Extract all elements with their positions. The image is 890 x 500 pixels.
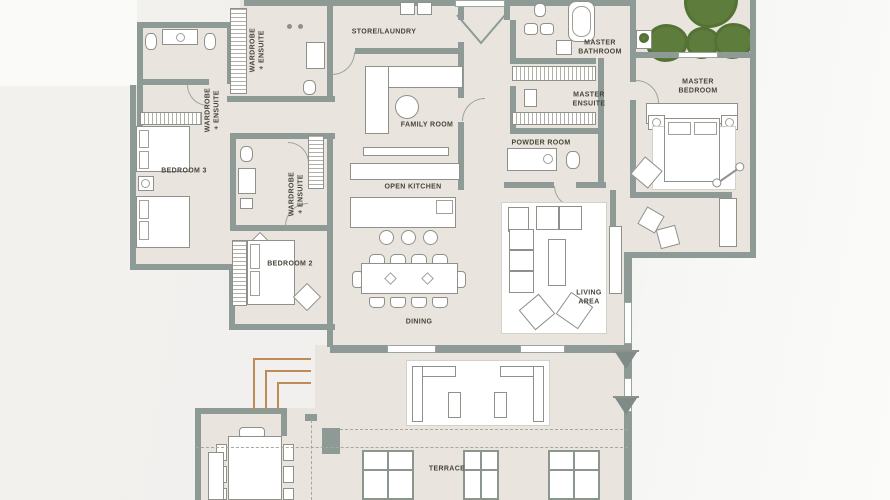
wall	[281, 408, 287, 436]
wall	[630, 0, 636, 58]
tv-console-icon	[363, 147, 449, 156]
wall	[230, 225, 330, 231]
wall	[504, 182, 554, 188]
plant-symbol-icon	[615, 352, 637, 369]
wall	[229, 324, 335, 330]
bar-stool-icon	[379, 230, 394, 245]
window-mullion	[550, 469, 598, 471]
window	[548, 450, 600, 500]
bar-stool-icon	[423, 230, 438, 245]
room-label-dining: DINING	[406, 319, 433, 328]
outdoor-chair-icon	[283, 466, 294, 483]
outdoor-chair-icon	[283, 488, 294, 500]
sink-icon	[540, 23, 554, 35]
wall	[750, 0, 756, 258]
media-unit-icon	[609, 226, 622, 294]
spotlight-icon	[287, 24, 292, 29]
wall	[195, 408, 201, 500]
dining-chair-icon	[369, 297, 385, 308]
room-label-master-bathroom: MASTER BATHROOM	[578, 39, 622, 57]
terrace-door-window	[520, 345, 565, 353]
wall	[327, 0, 333, 100]
room-label-master-bedroom: MASTER BEDROOM	[678, 78, 717, 96]
dashed-boundary-line	[196, 447, 628, 448]
terrace-sofa-icon	[533, 366, 544, 422]
room-label-living-area: LIVING AREA	[576, 289, 601, 307]
sink-basin-icon	[176, 33, 185, 42]
pillow-icon	[668, 122, 691, 135]
bathtub-basin-icon	[572, 6, 591, 37]
toilet-icon	[204, 33, 216, 50]
wall	[322, 428, 340, 454]
shower-icon	[556, 40, 572, 55]
wall	[630, 100, 636, 194]
room-label-terrace: TERRACE	[429, 466, 465, 475]
dining-chair-icon	[432, 297, 448, 308]
toilet-icon	[534, 3, 546, 17]
wall	[510, 128, 602, 134]
pillow-icon	[694, 122, 717, 135]
dining-table-icon	[361, 263, 458, 294]
room-label-powder-room: POWDER ROOM	[511, 140, 570, 149]
kitchen-counter-icon	[350, 163, 460, 180]
sink-icon	[240, 198, 253, 209]
washer-icon	[417, 2, 432, 15]
outdoor-table-icon	[228, 436, 282, 500]
wall	[244, 0, 330, 6]
background-patch	[0, 0, 137, 86]
floor-plan: WARDROBE + ENSUITE WARDROBE + ENSUITE WA…	[0, 0, 890, 500]
pillow-icon	[139, 200, 149, 219]
outdoor-chair-icon	[239, 427, 265, 437]
wall	[630, 192, 732, 198]
coffee-table-icon	[548, 239, 566, 286]
wardrobe-shelf-icon	[512, 112, 596, 125]
sofa-icon	[365, 66, 389, 134]
wall	[327, 133, 333, 245]
window	[362, 450, 414, 500]
pillow-icon	[250, 271, 260, 296]
spotlight-icon	[298, 24, 303, 29]
wall	[630, 252, 756, 258]
window-mullion	[480, 452, 482, 498]
plant-symbol-icon	[615, 398, 637, 415]
room-label-wardrobe-ensuite-top: WARDROBE + ENSUITE	[249, 28, 267, 72]
room-label-wardrobe-ensuite-mid: WARDROBE + ENSUITE	[288, 172, 306, 216]
wall	[598, 58, 604, 188]
wall	[624, 252, 632, 500]
sink-basin-icon	[543, 154, 553, 164]
wall	[510, 20, 516, 60]
sofa-icon	[509, 229, 534, 250]
wall	[327, 245, 333, 347]
toilet-icon	[303, 80, 316, 95]
sofa-icon	[509, 250, 534, 271]
wall	[230, 133, 236, 231]
room-label-bedroom-2: BEDROOM 2	[267, 261, 313, 270]
shower-icon	[306, 42, 325, 69]
wardrobe-shelf-icon	[232, 240, 247, 306]
room-label-open-kitchen: OPEN KITCHEN	[384, 184, 441, 193]
dashed-boundary-line	[311, 420, 312, 500]
room-label-master-ensuite: MASTER ENSUITE	[573, 91, 606, 109]
wall	[635, 52, 680, 58]
window-mullion	[465, 469, 497, 471]
wall	[436, 345, 521, 353]
entry-opening	[455, 0, 505, 7]
wall	[630, 58, 636, 82]
sofa-icon	[536, 206, 559, 230]
wardrobe-shelf-icon	[308, 135, 324, 189]
sofa-icon	[509, 271, 534, 293]
pillow-icon	[139, 151, 149, 169]
dashed-boundary-line	[340, 429, 628, 430]
side-table-icon	[448, 392, 461, 418]
wardrobe-shelf-icon	[512, 66, 596, 81]
room-label-wardrobe-ensuite-left: WARDROBE + ENSUITE	[204, 88, 222, 132]
planter-icon	[719, 198, 737, 247]
toilet-icon	[240, 146, 253, 162]
wall	[330, 0, 458, 6]
window-mullion	[364, 469, 412, 471]
room-label-bedroom-3: BEDROOM 3	[161, 168, 207, 177]
toilet-icon	[566, 151, 580, 169]
accent-step-lines	[277, 382, 311, 410]
window	[463, 450, 499, 500]
wall	[355, 48, 463, 54]
counter-strip	[208, 452, 224, 500]
pillow-icon	[139, 221, 149, 240]
bench-icon	[524, 89, 537, 107]
round-table-icon	[395, 95, 419, 119]
lamp-icon	[141, 179, 150, 188]
room-label-family-room: FAMILY ROOM	[401, 122, 453, 131]
window	[678, 52, 718, 58]
terrace-door-window	[387, 345, 436, 353]
wall	[510, 58, 596, 64]
sink-icon	[524, 23, 538, 35]
window-mullion	[387, 452, 389, 498]
toilet-icon	[145, 33, 157, 50]
sofa-icon	[559, 206, 582, 230]
window-mullion	[573, 452, 575, 498]
room-label-store-laundry: STORE/LAUNDRY	[352, 29, 416, 38]
wall	[330, 345, 388, 353]
wall	[137, 22, 233, 28]
pillow-icon	[139, 130, 149, 148]
bar-stool-icon	[401, 230, 416, 245]
wardrobe-shelf-icon	[230, 8, 247, 94]
dining-chair-icon	[390, 297, 406, 308]
washer-icon	[400, 2, 415, 15]
terrace-sofa-icon	[412, 366, 423, 422]
cooktop-icon	[436, 200, 453, 214]
wall	[130, 264, 235, 270]
side-table-icon	[494, 392, 507, 418]
wardrobe-shelf-icon	[140, 112, 202, 125]
pillow-icon	[250, 244, 260, 269]
shower-icon	[238, 168, 256, 194]
window	[624, 302, 632, 344]
wall	[227, 96, 335, 102]
dining-chair-icon	[411, 297, 427, 308]
entry-door-icon	[456, 14, 506, 46]
